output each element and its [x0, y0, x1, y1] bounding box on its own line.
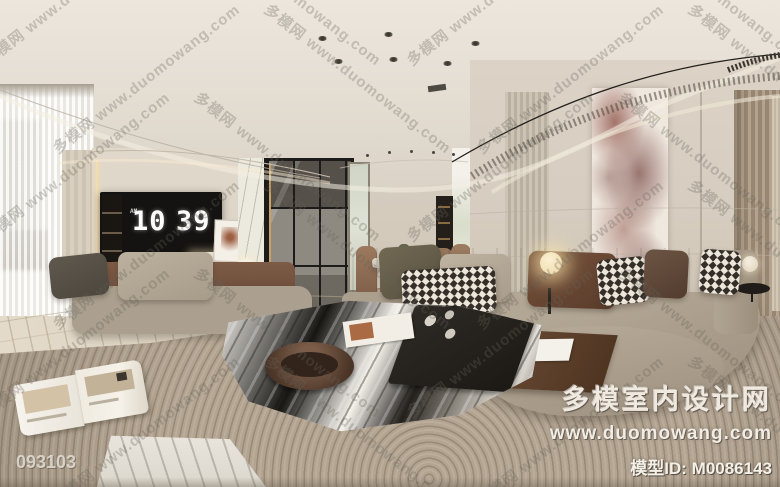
watermark-tile: 多模网 www.duomowang.com	[48, 0, 244, 158]
model-id-label: 模型ID:	[630, 459, 687, 478]
watermark-tile: 多模网 www.duomowang.com	[0, 87, 174, 246]
branding-site-name: 多模室内设计网	[550, 378, 772, 417]
watermark-tile: 多模网 www.duomowang.com	[190, 87, 386, 246]
model-id-value: M0086143	[692, 459, 772, 478]
branding-model-id: 模型ID: M0086143	[550, 454, 772, 479]
watermark-tile: 多模网 www.duomowang.com	[260, 0, 456, 158]
watermark-tile: 多模网 www.duomowang.com	[190, 0, 386, 70]
watermark-tile: 多模网 www.duomowang.com	[684, 0, 780, 158]
watermark-tile: 多模网 www.duomowang.com	[614, 0, 780, 70]
watermark-tile: 多模网 www.duomowang.com	[260, 175, 456, 334]
watermark-tile: 多模网 www.duomowang.com	[0, 263, 174, 422]
watermark-tile: 多模网 www.duomowang.com	[472, 175, 668, 334]
branding-site-url: www.duomowang.com	[550, 423, 772, 445]
watermark-tile: 多模网 www.duomowang.com	[0, 0, 174, 70]
watermark-tile: 多模网 www.duomowang.com	[48, 351, 244, 487]
watermark-tile: 多模网 www.duomowang.com	[190, 263, 386, 422]
watermark-tile: 多模网 www.duomowang.com	[472, 0, 668, 158]
watermark-tile: 多模网 www.duomowang.com	[260, 351, 456, 487]
watermark-tile: 多模网 www.duomowang.com	[684, 175, 780, 334]
watermark-tile: 多模网 www.duomowang.com	[402, 87, 598, 246]
watermark-tile: 多模网 www.duomowang.com	[614, 87, 780, 246]
watermark-tile: 多模网 www.duomowang.com	[402, 0, 598, 70]
watermark-tile: 多模网 www.duomowang.com	[48, 175, 244, 334]
watermark-branding: 多模室内设计网 www.duomowang.com 模型ID: M0086143	[550, 378, 772, 479]
panorama-living-room: AM 10 39	[0, 0, 780, 487]
image-id: 093103	[16, 452, 76, 473]
